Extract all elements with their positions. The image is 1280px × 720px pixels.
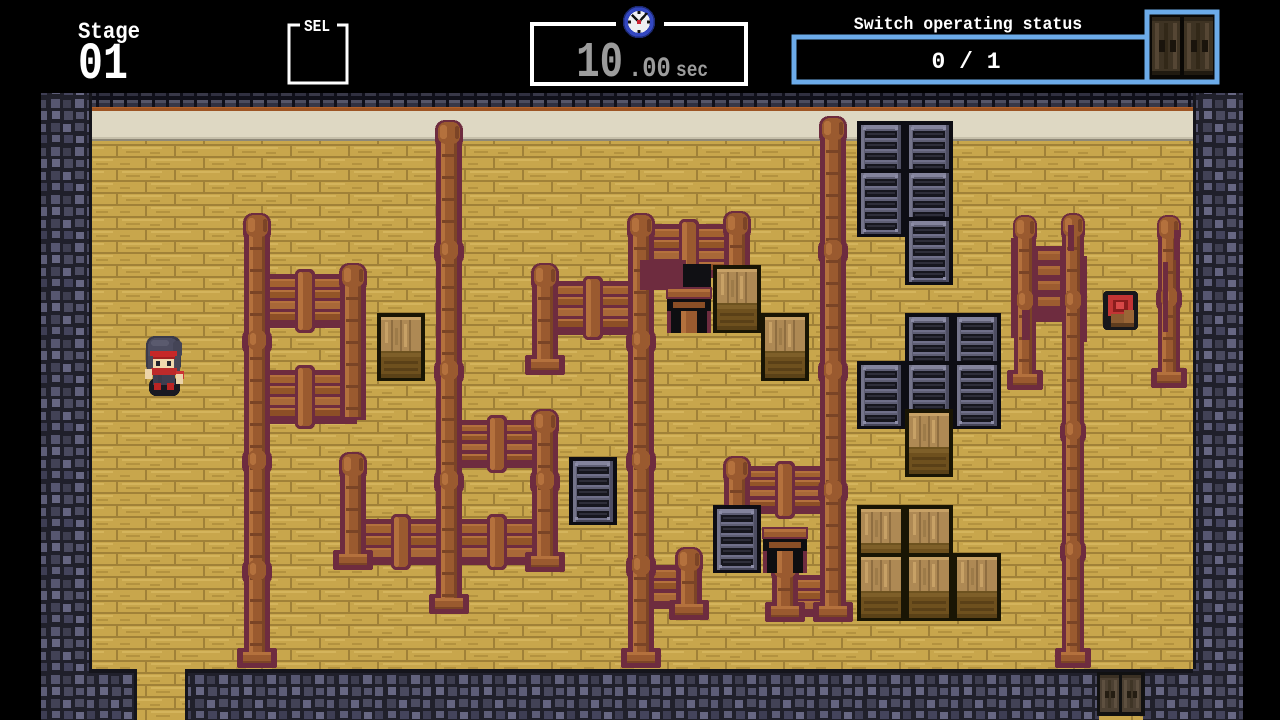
svg-text:SEL: SEL: [304, 17, 330, 36]
svg-text:01: 01: [78, 36, 128, 95]
svg-text:Switch operating status: Switch operating status: [854, 15, 1082, 35]
svg-text:0 / 1: 0 / 1: [931, 49, 1000, 75]
svg-text:.00: .00: [628, 52, 671, 84]
svg-text:sec: sec: [676, 59, 708, 83]
svg-text:10: 10: [576, 36, 623, 92]
